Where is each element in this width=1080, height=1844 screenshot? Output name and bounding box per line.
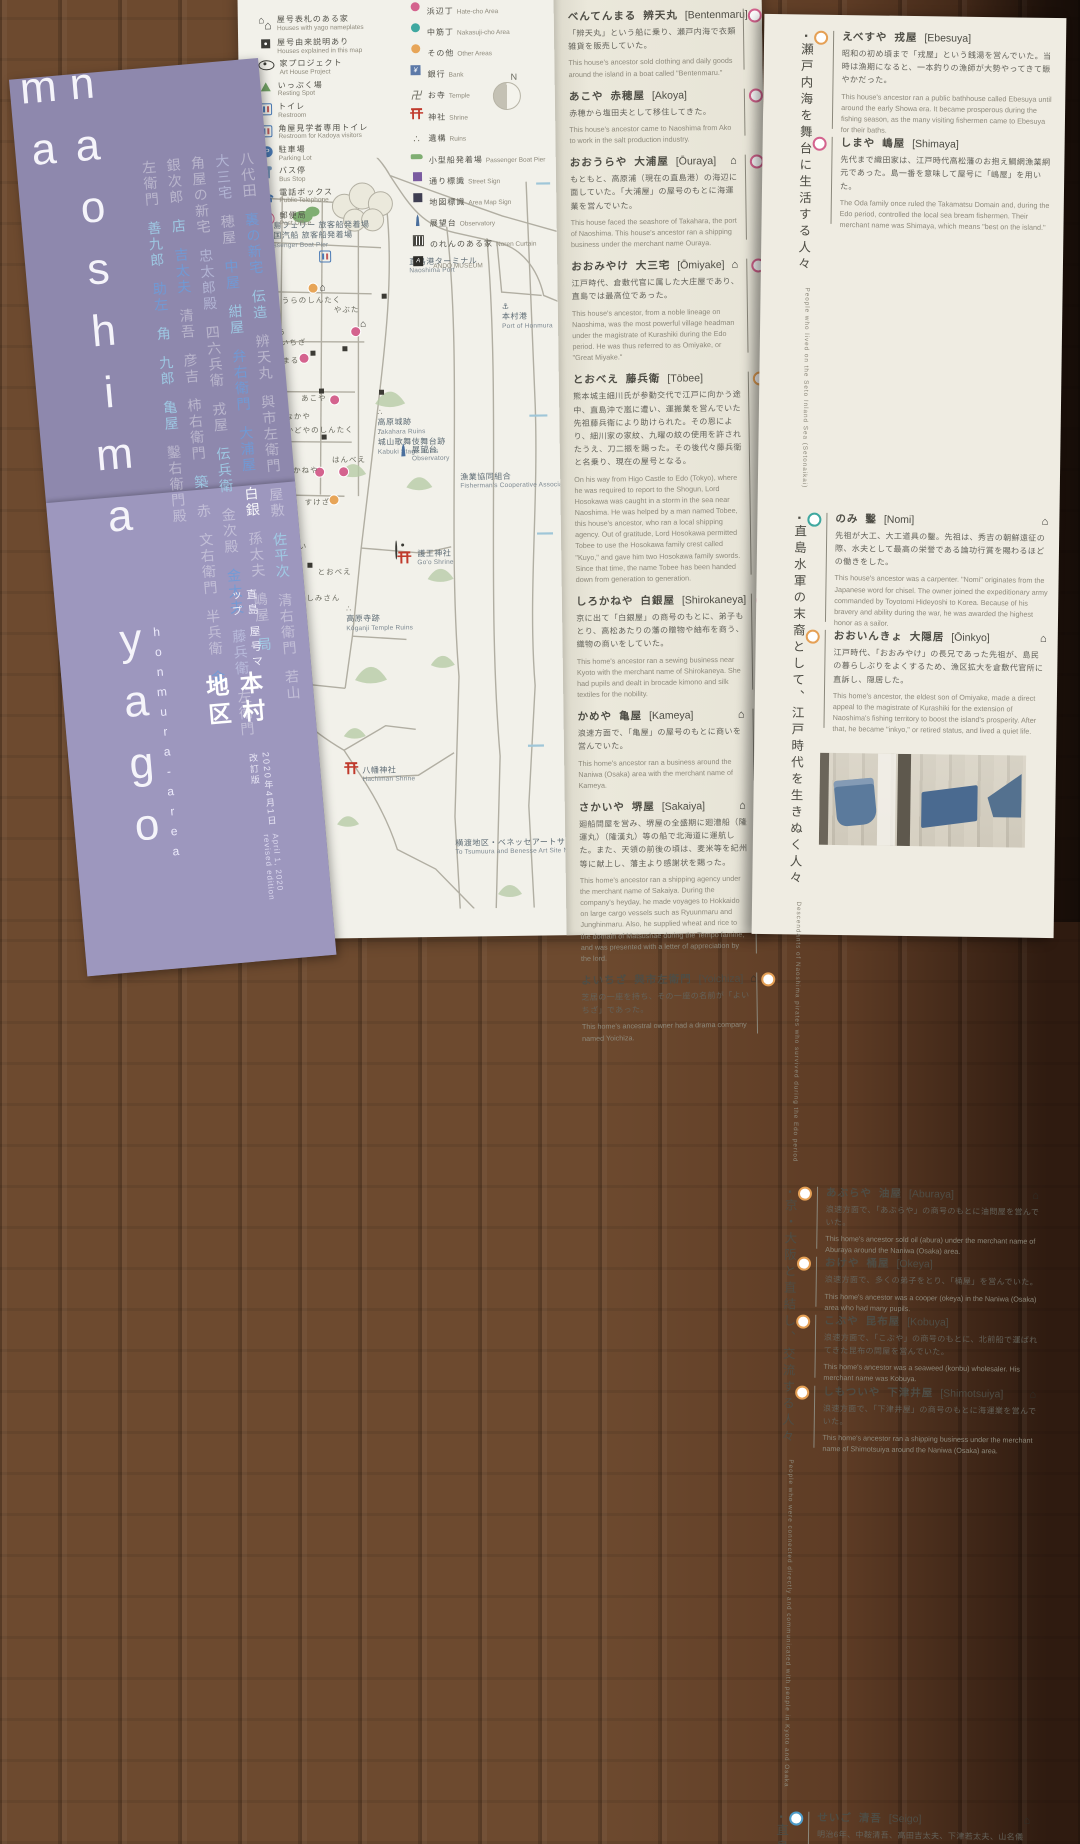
map-label-en: To Tsumuura and Benesse Art Site Naoshim… (455, 847, 566, 858)
map-point: うらのしんたく (282, 294, 342, 306)
yago-entry: おけや 桶屋 [Okeya] 浪速方面で、多くの弟子をとり、「桶屋」を営んでいた… (824, 1255, 1039, 1315)
entry-kana: しまや (841, 135, 876, 150)
section-heading: 直島水軍の末裔として、江戸時代を生きぬく人々 Descendants of Na… (758, 510, 807, 1162)
entry-text-en: This home's ancestor sold oil (abura) un… (825, 1233, 1039, 1258)
cover-title-large: 本村地区 (198, 670, 273, 758)
yago-entry: しまや 嶋屋 [Shimaya] 先代まで織田家は、江戸時代高松藩のお抱え鯛網漁… (839, 135, 1054, 233)
section-heading-jp: 直島水軍の末裔として、江戸時代を生きぬく人々 (762, 512, 807, 888)
legend-item: のれんのある家Noren Curtain (411, 232, 561, 252)
entry-text-jp: 江戸時代、倉敷代官に属した大庄屋であり、直島では最高位であった。 (571, 275, 739, 305)
entry-text-en: This home's ancestor ran a shipping busi… (822, 1432, 1036, 1457)
yago-name: 伝造 (246, 288, 273, 322)
entry-kana: せいご (817, 1810, 852, 1825)
yago-entry: せいご 清吾 [Seigo] 明治6年、中鞍清吾、高田吉太夫、下津若太夫、山名儀… (816, 1810, 1031, 1844)
legend-label-en: Shrine (449, 114, 468, 121)
entry-kanji: 昆布屋 (866, 1313, 901, 1328)
legend-icon (258, 16, 272, 34)
legend-label-en: Nakasuji-cho Area (457, 29, 510, 37)
entry-romaji: [Shirokaneya] (682, 594, 746, 607)
legend-icon (410, 193, 424, 202)
legend-label-jp: 中筋丁 (427, 28, 454, 37)
entry-text-en: This home's ancestor was a cooper (okeya… (824, 1291, 1038, 1316)
yago-name: 戎屋 (206, 401, 233, 435)
yago-name: 八代田 (234, 150, 263, 200)
legend-right-column: 浜辺丁Hate-cho Area 中筋丁Nakasuji-cho Area その… (408, 0, 562, 273)
map-label-en: Kōganji Temple Ruins (346, 624, 413, 633)
map-point (379, 390, 384, 395)
noren-photo (819, 753, 1026, 848)
entry-area-marker (813, 137, 827, 151)
section-heading-en: People who lived on the Seto Inland Sea … (768, 287, 811, 488)
entry-kana: よいちざ (581, 972, 627, 988)
entry-kanji: 大隠居 (910, 629, 945, 644)
house-nameplate-icon (1042, 516, 1050, 528)
map-label: 八幡神社 Hachiman Shrine (362, 765, 415, 785)
entry-kanji: 戎屋 (894, 30, 917, 45)
entry-romaji: [Bentenmaru] (685, 9, 748, 22)
legend-item: 神社Shrine (409, 105, 559, 125)
legend-icon (409, 129, 423, 147)
yago-entry: よいちざ 與市左衛門 [Yoichiza] 芝居の一座を持ち、その一座の名前が「… (581, 971, 750, 1044)
entry-area-marker (749, 88, 763, 102)
legend-label-jp: 銀行 (428, 70, 446, 79)
house-nameplate-icon (732, 259, 740, 271)
map-label-en: Port of Honmura (502, 322, 553, 331)
legend-icon (409, 86, 423, 104)
entry-area-marker (806, 630, 820, 644)
legend-item: お寺Temple (409, 83, 559, 104)
entry-text-en: This house faced the seashore of Takahar… (571, 214, 739, 250)
section-heading-en: Descendants of Naoshima pirates who surv… (758, 901, 802, 1163)
entry-kanji: 堺屋 (632, 799, 655, 814)
legend-label-en: Other Areas (457, 50, 492, 57)
map-point (310, 351, 315, 356)
legend-label-en: Area Map Sign (468, 199, 511, 207)
entry-kanji: 油屋 (879, 1185, 902, 1200)
entry-romaji: [Shimotsuiya] (940, 1387, 1003, 1400)
yago-entry: のみ 鑿 [Nomi] 先祖が大工、大工道具の鑿。先祖は、秀吉の朝鮮遠征の際、水… (834, 511, 1050, 631)
entry-text-jp: 芝居の一座を持ち、その一座の名前が「よいちざ」であった。 (581, 989, 749, 1019)
yago-name: 辨天丸 (250, 333, 279, 383)
entry-kana: のみ (835, 511, 858, 526)
entry-kana: こぶや (824, 1313, 859, 1328)
compass: N (493, 72, 524, 112)
legend-icon (258, 61, 274, 71)
map-point (307, 563, 312, 568)
legend-item: ANDO MUSEUM (411, 253, 561, 273)
entry-text-jp: 江戸時代、「おおみやけ」の長兄であった先祖が、島民の暮らしぶりをよくするため、漁… (833, 646, 1048, 690)
entry-romaji: [Nomi] (884, 513, 915, 525)
photo-of-naoshima-yago-map: { "poster": { "big_vertical": "naoshima … (0, 0, 1080, 922)
entry-kanji: 鑿 (865, 511, 877, 526)
entry-text-jp: 赤穂から塩田夫として移住してきた。 (569, 104, 737, 121)
entry-kana: かめや (577, 709, 612, 724)
legend-label-jp: 郵便局 (279, 210, 311, 220)
cover-title-small: 直島 屋号マップ (192, 588, 265, 675)
entry-kana: おおみやけ (571, 258, 629, 274)
entry-text-en: This home's ancestral owner had a drama … (582, 1019, 750, 1044)
entry-text-jp: 浪速方面で、「あぶらや」の商号のもとに油問屋を営んでいた。 (825, 1203, 1039, 1233)
entry-text-en: This house's ancestor ran a public bathh… (841, 91, 1056, 139)
legend-label-jp: のれんのある家 (430, 239, 493, 249)
yago-entry: しもついや 下津井屋 [Shimotsuiya] 浪速方面で、「下津井屋」の商号… (822, 1384, 1037, 1458)
legend-item: 駐車場 Parking Lot (260, 143, 400, 162)
legend-item: 郵便局 Post Office (260, 209, 400, 228)
legend-label-jp: 家プロジェクト (279, 59, 342, 69)
entry-romaji: [Aburaya] (909, 1188, 954, 1201)
entry-text-jp: 先祖が大工、大工道具の鑿。先祖は、秀吉の朝鮮遠征の際、水夫として最高の栄誉である… (835, 529, 1050, 573)
entry-kana: さかいや (579, 799, 625, 815)
entry-romaji: [Akoya] (652, 89, 687, 101)
yago-name: 中屋 (218, 258, 245, 292)
map-point: あこや (301, 392, 327, 403)
map-point (397, 551, 411, 563)
yago-entry: さかいや 堺屋 [Sakaiya] 廻船問屋を営み、堺屋の全盛期に廻漕船（隆運丸… (579, 798, 749, 964)
entry-kanji: 清吾 (859, 1811, 882, 1826)
entry-text-en: This house's ancestor was a carpenter. "… (834, 572, 1049, 631)
entry-text-jp: 浪速方面で、「下津井屋」の商号のもとに海運業を営んでいた。 (823, 1402, 1037, 1432)
entry-text-jp: 「辨天丸」という船に乗り、瀬戸内海で衣類雑貨を販売していた。 (568, 25, 736, 55)
right-text-page: 瀬戸内海を舞台に生活する人々 People who lived on the S… (752, 14, 1067, 938)
yago-name: 彦吉 (178, 352, 205, 386)
house-nameplate-icon (1023, 1815, 1031, 1827)
entry-kanji: 與市左衛門 (634, 972, 692, 988)
yago-name: 左衛門 (136, 159, 165, 209)
map-label-jp: 八幡神社 (362, 765, 415, 776)
legend-label-en: Bus Stop (279, 176, 306, 184)
legend-item: いっぷく場 Resting Spot (259, 79, 399, 98)
map-point (344, 762, 358, 774)
cover-date-jp: 2020年4月1日 改訂版 (207, 751, 280, 839)
yago-entry: べんてんまる 辨天丸 [Bentenmaru] 「辨天丸」という船に乗り、瀬戸内… (568, 7, 737, 80)
yago-entry: あぶらや 油屋 [Aburaya] 浪速方面で、「あぶらや」の商号のもとに油問屋… (825, 1185, 1040, 1259)
entry-area-marker (797, 1257, 811, 1271)
section-heading-jp: 直島文化を育む人々 (747, 1811, 789, 1844)
legend-item: その他Other Areas (408, 41, 558, 61)
legend-label-en: Street Sign (468, 178, 500, 185)
entry-kanji: 赤穂屋 (610, 88, 645, 103)
entry-romaji: [Okeya] (896, 1258, 932, 1271)
yago-name: 銀次郎 (160, 157, 189, 207)
legend-label-jp: 地図標識 (429, 198, 465, 208)
legend-icon (410, 151, 424, 159)
legend-label-en: Passenger Boat Pier (486, 156, 546, 164)
compass-n-label: N (511, 72, 523, 82)
legend-item: 銀行Bank (408, 62, 558, 82)
map-point: とおべえ (317, 566, 351, 577)
legend-item: 屋号由来説明あり Houses explained in this map (258, 36, 398, 55)
legend-item: 浜辺丁Hate-cho Area (408, 0, 558, 19)
map-label: 本村港 Port of Honmura (502, 301, 553, 331)
compass-disc (493, 82, 521, 110)
entry-romaji: [Ōinkyo] (951, 632, 990, 645)
yago-name: 屋敷 (263, 486, 290, 520)
legend-item: 電話ボックス Public Telephone (260, 186, 400, 207)
entry-area-marker (798, 1186, 812, 1200)
map-label-en: Go'o Shrine (417, 559, 453, 568)
legend-icon (411, 256, 425, 266)
entry-kana: しろかねや (576, 593, 634, 609)
entry-area-marker (795, 1385, 809, 1399)
legend-label-jp: 通り標識 (429, 177, 465, 187)
entry-romaji: [Tōbee] (667, 373, 703, 385)
entry-text-en: This home's ancestor ran a shipping agen… (580, 873, 749, 965)
legend-icon (408, 44, 422, 53)
map-label-jp: 護王神社 (417, 549, 453, 560)
legend-label-en: Bank (449, 72, 464, 79)
house-nameplate-icon (739, 800, 747, 812)
entry-text-jp: もともと、高原浦（現在の直島港）の海辺に面していた。「大浦屋」の屋号のもとに海運… (570, 171, 739, 214)
legend-label-en: Ruins (449, 136, 466, 143)
map-point: やぶた (334, 304, 360, 315)
legend-label-en: Temple (449, 92, 470, 99)
entry-kanji: 大三宅 (636, 258, 671, 273)
entry-kana: えべすや (842, 29, 887, 45)
legend-label-en: Noren Curtain (496, 241, 537, 249)
entry-text-en: On his way from Higo Castle to Edo (Toky… (574, 471, 744, 585)
section: 瀬戸内海を舞台に生活する人々 People who lived on the S… (768, 28, 1058, 492)
map-legend: 屋号表札のある家 Houses with yago nameplates 屋号由… (244, 0, 550, 2)
map-label: 漁業協同組合 Fisherman's Cooperative Associati… (460, 471, 566, 491)
map-label: 高原寺跡 Kōganji Temple Ruins (346, 603, 413, 633)
entry-area-marker (814, 31, 828, 45)
yago-name: 孫太夫 (242, 530, 271, 580)
entry-text-jp: 浪速方面で、「亀屋」の屋号のもとに商いを営んでいた。 (578, 725, 746, 755)
entry-area-marker (748, 8, 762, 22)
map-point (319, 250, 331, 262)
legend-icon (411, 214, 425, 226)
legend-label-jp: 神社 (428, 113, 446, 122)
legend-icon (408, 2, 422, 11)
legend-item: 家プロジェクト Art House Project (258, 58, 398, 77)
entry-text-jp: 熊本城主細川氏が参勤交代で江戸に向かう途中、直島沖で嵐に遭い、運搬業を営んでいた… (573, 388, 742, 470)
yago-name: 吉太夫 (168, 246, 197, 296)
yago-name: 大三宅 (209, 152, 238, 202)
yago-name: 助左 (147, 280, 174, 314)
middle-text-page: べんてんまる 辨天丸 [Bentenmaru] 「辨天丸」という船に乗り、瀬戸内… (553, 0, 774, 935)
map-point: はんべえ (332, 454, 366, 465)
house-nameplate-icon (738, 709, 746, 721)
entry-area-marker (789, 1812, 803, 1826)
entry-romaji: [Ōmiyake] (677, 259, 724, 272)
yago-entry: こぶや 昆布屋 [Kobuya] 浪速方面で、「こぶや」の商号のもとに、北前船で… (823, 1313, 1038, 1387)
yago-name: 赤 (191, 502, 217, 520)
map-label-jp: 本村港 (502, 312, 553, 323)
entry-text-jp: 浪速方面で、多くの弟子をとり、「桶屋」を営んでいた。 (825, 1273, 1039, 1290)
section: 京・大阪と直結し、交流する人々 People who were connecte… (750, 1184, 1042, 1791)
entry-text-en: The Oda family once ruled the Takamatsu … (839, 197, 1053, 233)
section-heading-jp: 瀬戸内海を舞台に生活する人々 (771, 30, 814, 274)
map-label-jp: 展望台 (412, 445, 450, 456)
entry-text-en: This home's ancestor ran a sewing busine… (577, 653, 746, 700)
map-point (319, 278, 325, 296)
map-label: 横渡地区・ベネッセアートサイト直島へ To Tsumuura and Benes… (455, 837, 566, 858)
entry-kana: とおべえ (573, 372, 619, 388)
yago-name: 九郎 (153, 354, 180, 388)
legend-label-jp: 浜辺丁 (427, 7, 454, 16)
legend-label-en: Houses explained in this map (277, 47, 362, 56)
house-nameplate-icon (730, 155, 738, 167)
entry-kanji: 辨天丸 (643, 8, 678, 23)
yago-name: 白銀 (238, 485, 265, 519)
entry-area-marker (807, 512, 821, 526)
yago-name: 善九郎 (141, 220, 170, 270)
legend-item: 通り標識Street Sign (410, 169, 560, 189)
entry-text-jp: 京に出て「白銀屋」の商号のもとに、弟子もとり、高松あたりの藩の贈物や紬布を商う、… (576, 610, 745, 653)
entry-text-en: This house's ancestor sold clothing and … (568, 55, 736, 80)
map-label: 展望台 Observatory (412, 445, 450, 464)
legend-icon (408, 23, 422, 32)
legend-label-en: Houses with yago nameplates (277, 24, 364, 33)
section-heading: 京・大阪と直結し、交流する人々 People who were connecte… (750, 1184, 798, 1788)
entry-romaji: [Yoichiza] (699, 973, 744, 986)
section-heading-jp: 京・大阪と直結し、交流する人々 (754, 1186, 798, 1446)
map-label-en: Passenger Boat Pier (265, 241, 370, 251)
legend-icon (409, 108, 423, 119)
yago-name: 金次殿 (216, 506, 245, 556)
map-point (350, 326, 361, 337)
entry-area-marker (796, 1314, 810, 1328)
entry-kana: おけや (825, 1255, 860, 1270)
yago-entry: かめや 亀屋 [Kameya] 浪速方面で、「亀屋」の屋号のもとに商いを営んでい… (577, 707, 746, 791)
yago-name: 大浦屋 (233, 424, 262, 474)
entry-kanji: 大浦屋 (634, 154, 669, 169)
middle-entries: べんてんまる 辨天丸 [Bentenmaru] 「辨天丸」という船に乗り、瀬戸内… (568, 7, 750, 1044)
entry-kanji: 亀屋 (619, 708, 642, 723)
yago-name: 穂屋 (215, 213, 242, 247)
map-point: すけざ (304, 496, 330, 507)
yago-name: 角 (151, 325, 177, 343)
legend-item: 屋号表札のある家 Houses with yago nameplates (258, 13, 398, 34)
yago-name: 店 (166, 218, 192, 236)
legend-item: 角屋見学者専用トイレ Restroom for Kadoya visitors (259, 122, 399, 141)
entry-romaji: [Seigo] (889, 1813, 922, 1825)
section: 直島文化を育む人々 People who contributed to the … (744, 1809, 1033, 1844)
map-point (298, 353, 309, 364)
map-label-en: Fisherman's Cooperative Association (460, 481, 566, 491)
legend-icon (410, 172, 424, 181)
map-label: 護王神社 Go'o Shrine (417, 549, 454, 568)
legend-item: 地図標識Area Map Sign (410, 190, 560, 210)
legend-label-jp: 展望台 (430, 219, 457, 228)
house-nameplate-icon (750, 973, 758, 985)
legend-label-en: Post Office (280, 220, 312, 228)
map-point (342, 346, 347, 351)
legend-left-column: 屋号表札のある家 Houses with yago nameplates 屋号由… (258, 13, 401, 228)
entry-text-jp: 昭和の初め頃まで「戎屋」という銭湯を営んでいた。当時は漁期になると、一本釣りの漁… (841, 47, 1056, 91)
entry-kanji: 嶋屋 (882, 136, 905, 151)
map-point (329, 394, 340, 405)
legend-item: トイレ Restroom (259, 101, 399, 120)
cover-date-en: April 1, 2020 revised edition (206, 834, 288, 934)
legend-icon (408, 65, 422, 75)
entry-text-en: This home's ancestor ran a business arou… (578, 755, 746, 791)
house-nameplate-icon (1029, 1388, 1037, 1400)
legend-icon (411, 235, 425, 246)
yago-name: 築 (188, 474, 214, 492)
legend-label-jp: その他 (427, 49, 454, 58)
entry-romaji: [Kobuya] (907, 1316, 949, 1329)
entry-kanji: 下津井屋 (887, 1384, 933, 1400)
house-nameplate-icon (1032, 1190, 1040, 1202)
section: 直島水軍の末裔として、江戸時代を生きぬく人々 Descendants of Na… (758, 510, 1051, 1166)
legend-label-en: Art House Project (280, 68, 343, 77)
entry-text-jp: 廻船問屋を営み、堺屋の全盛期に廻漕船（隆運丸）（隆漢丸）等の船で北海道に運航した… (579, 816, 748, 872)
entry-text-jp: 明治6年、中鞍清吾、高田吉太夫、下津若太夫、山名儀兵衛門等の女文楽5人が中心で阿… (817, 1828, 1032, 1844)
entry-text-jp: 浪速方面で、「こぶや」の商号のもとに、北前船で運ばれてきた昆布の問屋を営んでいた… (824, 1331, 1038, 1361)
entry-romaji: [Kameya] (649, 710, 694, 723)
yago-name: 忠太郎殿 (193, 247, 223, 313)
entry-kana: あこや (569, 88, 604, 103)
yago-entry: おおいんきょ 大隠居 [Ōinkyo] 江戸時代、「おおみやけ」の長兄であった先… (832, 628, 1047, 737)
legend-label-en: Resting Spot (278, 90, 323, 98)
house-nameplate-icon (1040, 633, 1048, 645)
legend-label-jp: 駐車場 (279, 145, 312, 155)
entry-kana: あぶらや (826, 1185, 872, 1201)
yago-name: 亀屋 (157, 399, 184, 433)
map-point (322, 435, 327, 440)
map-point (338, 466, 349, 477)
legend-item: 中筋丁Nakasuji-cho Area (408, 20, 558, 40)
legend-label-jp: お寺 (428, 91, 446, 100)
map-point: かどやのしんたく (285, 424, 353, 436)
legend-label-jp: 小型船発着場 (429, 155, 483, 165)
legend-label-en: Observatory (460, 220, 496, 227)
entry-kana: おおいんきょ (834, 628, 903, 644)
yago-name: 紺屋 (222, 303, 249, 337)
legend-label-en: Restroom for Kadoya visitors (278, 132, 368, 141)
map-point (382, 294, 387, 299)
legend-label-en: Restroom (278, 112, 306, 120)
yago-entry: えべすや 戎屋 [Ebesuya] 昭和の初め頃まで「戎屋」という銭湯を営んでい… (841, 29, 1056, 138)
section-heading: 直島文化を育む人々 People who contributed to the … (744, 1809, 789, 1844)
entry-kana: しもついや (823, 1384, 880, 1400)
yago-name: 佐平次 (267, 531, 296, 581)
legend-label-jp: トイレ (278, 102, 306, 112)
yago-name: 清吾 (174, 307, 201, 341)
legend-label-en: ANDO MUSEUM (433, 262, 483, 270)
map-point (328, 494, 339, 505)
entry-romaji: [Sakaiya] (662, 800, 705, 813)
map-label-en: Observatory (412, 455, 450, 464)
entry-kanji: 藤兵衛 (626, 371, 661, 386)
entry-romaji: [Ōuraya] (676, 155, 716, 168)
legend-item: バス停 Bus Stop (260, 165, 400, 184)
section-heading-en: People who were connected directly and c… (750, 1459, 795, 1788)
legend-item: 小型船発着場Passenger Boat Pier (410, 148, 560, 168)
legend-label-jp: バス停 (279, 166, 306, 176)
entry-text-jp: 先代まで織田家は、江戸時代高松藩のお抱え鯛網漁業網元であった。島一番を意味して屋… (840, 153, 1055, 197)
legend-label-jp: いっぷく場 (278, 80, 323, 90)
map-label-en: Hachiman Shrine (362, 776, 415, 785)
entry-text-en: This house's ancestor, from a noble line… (572, 305, 741, 363)
entry-text-en: This home's ancestor was a seaweed (konb… (823, 1361, 1037, 1386)
yago-entry: しろかねや 白銀屋 [Shirokaneya] 京に出て「白銀屋」の商号のもとに… (576, 592, 745, 701)
legend-icon (258, 39, 272, 48)
entry-text-en: This house's ancestor came to Naoshima f… (569, 122, 737, 147)
yago-name: 若山 (279, 668, 306, 702)
yago-name: 伝兵衛 (210, 446, 239, 496)
entry-romaji: [Shimaya] (912, 138, 959, 151)
entry-kana: べんてんまる (568, 8, 637, 24)
yago-entry: あこや 赤穂屋 [Akoya] 赤穂から塩田夫として移住してきた。 This h… (569, 86, 738, 146)
entry-text-en: This home's ancestor, the eldest son of … (832, 690, 1047, 738)
legend-label-en: Hate-cho Area (457, 8, 499, 16)
entry-kana: おおうらや (570, 154, 628, 170)
yago-entry: おおうらや 大浦屋 [Ōuraya] もともと、高原浦（現在の直島港）の海辺に面… (570, 153, 739, 250)
legend-label-jp: 遺構 (428, 134, 446, 143)
yago-entry: おおみやけ 大三宅 [Ōmiyake] 江戸時代、倉敷代官に属した大庄屋であり、… (571, 257, 740, 363)
